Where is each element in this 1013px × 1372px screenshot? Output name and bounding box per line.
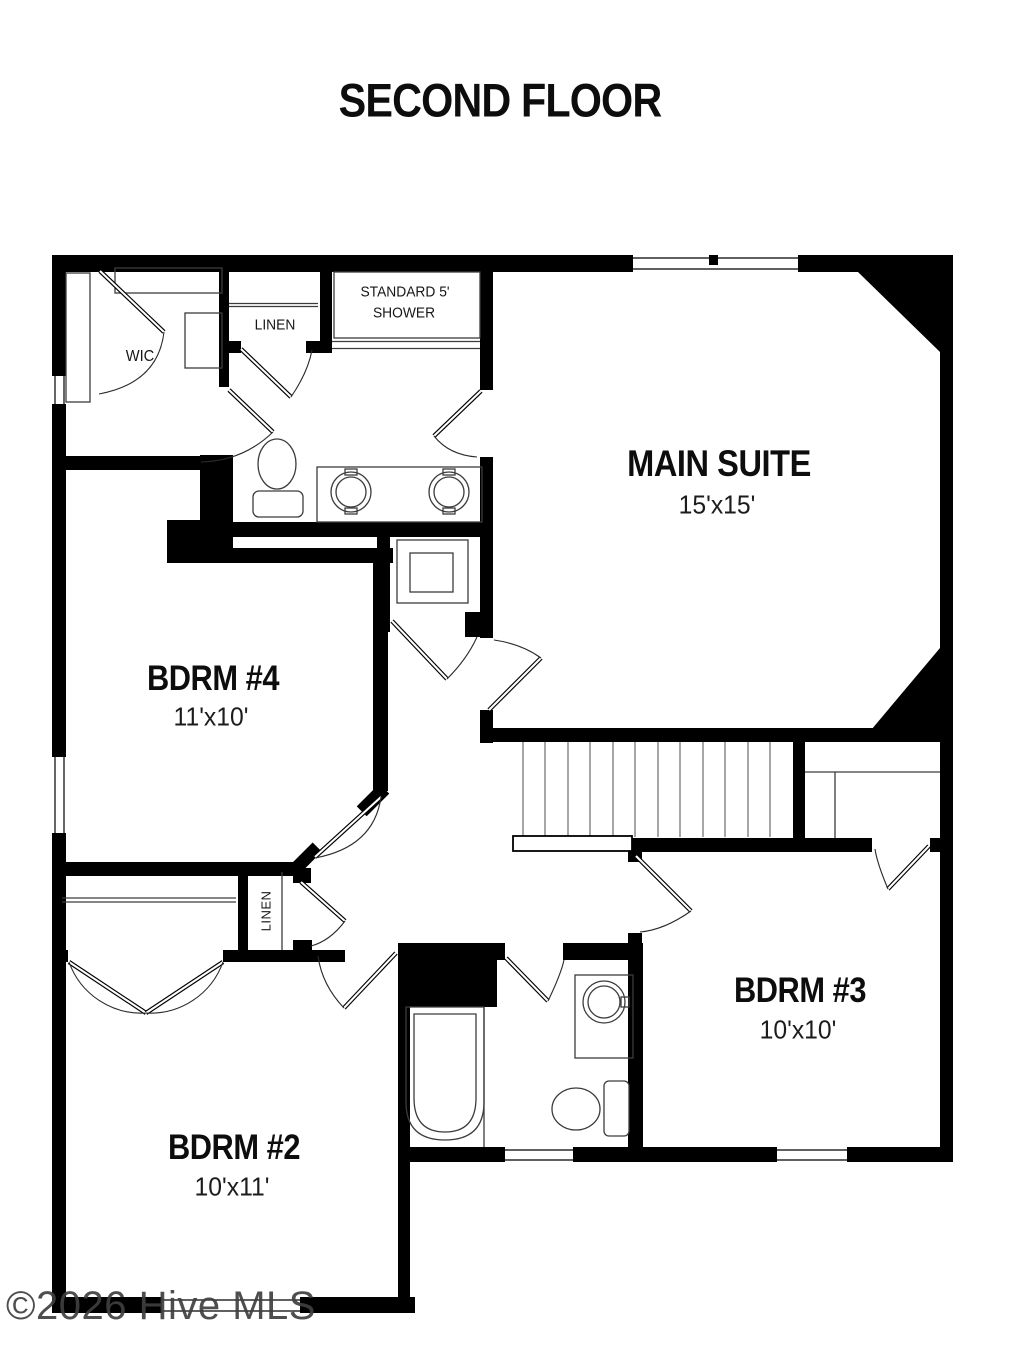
bath2-door <box>506 958 564 1001</box>
bathtub <box>406 1007 484 1147</box>
room-label-wic: WIC <box>126 348 155 366</box>
main-suite-door <box>489 640 541 710</box>
hall-closet-door <box>392 621 477 679</box>
toilet-main-bath <box>253 439 303 517</box>
room-label-bdrm2: BDRM #2 <box>168 1128 300 1168</box>
room-label-linen-lower: LINEN <box>259 891 274 932</box>
room-dims-bdrm2: 10'x11' <box>195 1172 270 1203</box>
room-label-bdrm4: BDRM #4 <box>147 659 279 699</box>
mls-watermark: ©2026 Hive MLS <box>6 1284 316 1329</box>
suite-bath-door <box>434 391 481 457</box>
room-dims-bdrm4: 11'x10' <box>174 702 249 733</box>
floor-plan: SECOND FLOOR MAIN SUITE 15'x15' BDRM #4 … <box>0 0 1013 1372</box>
bdrm3-door <box>636 856 691 932</box>
window-wic-west <box>55 376 64 404</box>
toilet-bath2 <box>552 1081 629 1136</box>
window-main-suite-north <box>633 255 798 269</box>
wic-door <box>99 271 164 394</box>
chamfer-corner-bottom <box>861 648 940 742</box>
shower-label-line1: STANDARD 5' <box>360 284 449 301</box>
sink-bath2 <box>575 975 633 1058</box>
window-bath2-south <box>505 1150 573 1160</box>
hall-cabinet <box>397 540 468 603</box>
page-title: SECOND FLOOR <box>339 73 662 128</box>
chamfer-corner-top <box>858 272 940 352</box>
vanity-main-bath <box>317 467 482 522</box>
window-bdrm4-west <box>55 757 64 833</box>
bdrm3-closet-shelf <box>805 772 940 838</box>
shower-label-line2: SHOWER <box>373 305 435 322</box>
room-label-bdrm3: BDRM #3 <box>734 971 866 1011</box>
wic-shelf <box>66 273 90 402</box>
room-dims-bdrm3: 10'x10' <box>760 1015 837 1046</box>
staircase <box>513 742 770 851</box>
room-label-linen-upper: LINEN <box>255 317 296 334</box>
linen-upper-door <box>241 349 312 397</box>
bdrm3-closet-door <box>875 846 929 889</box>
bdrm4-door <box>315 797 381 858</box>
bath2-plumbing-wall <box>398 943 497 1007</box>
bdrm2-closet-shelf <box>62 898 236 902</box>
bdrm2-closet-doors <box>69 962 223 1013</box>
stair-handrail <box>513 836 632 851</box>
room-label-main-suite: MAIN SUITE <box>627 443 811 485</box>
window-bdrm3-south <box>777 1150 847 1160</box>
wic-dresser <box>185 313 222 368</box>
linen-lower-door <box>301 882 345 946</box>
window-mullion <box>709 255 718 265</box>
room-dims-main-suite: 15'x15' <box>679 490 756 521</box>
